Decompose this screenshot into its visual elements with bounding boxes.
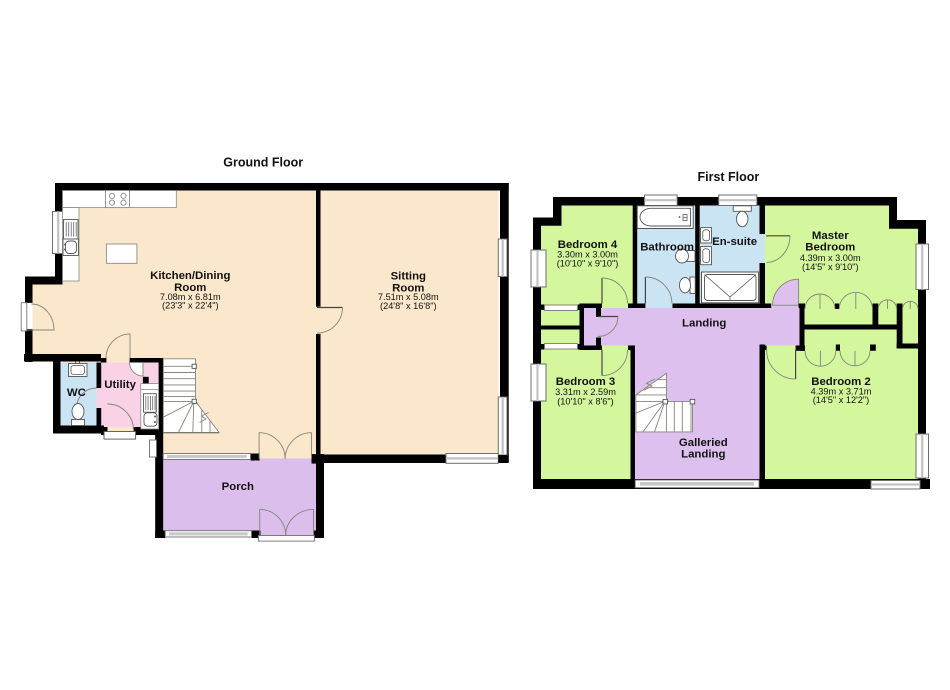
svg-text:(10'10" x 9'10"): (10'10" x 9'10"): [557, 258, 619, 268]
svg-text:Bathroom: Bathroom: [640, 242, 694, 254]
svg-text:First Floor: First Floor: [697, 170, 759, 184]
svg-text:Bedroom: Bedroom: [805, 241, 855, 253]
svg-text:Galleried: Galleried: [679, 437, 728, 449]
svg-text:Ground Floor: Ground Floor: [223, 155, 303, 169]
svg-text:(14'5" x 9'10"): (14'5" x 9'10"): [802, 262, 859, 272]
svg-text:Landing: Landing: [681, 449, 725, 461]
svg-text:(23'3" x 22'4"): (23'3" x 22'4"): [162, 301, 219, 311]
svg-text:Porch: Porch: [222, 481, 254, 493]
svg-text:(14'5" x 12'2"): (14'5" x 12'2"): [813, 395, 870, 405]
svg-text:(10'10" x 8'6"): (10'10" x 8'6"): [557, 396, 614, 406]
svg-text:Utility: Utility: [104, 379, 136, 391]
svg-text:(24'8" x 16'8"): (24'8" x 16'8"): [380, 301, 437, 311]
svg-text:En-suite: En-suite: [712, 236, 757, 248]
svg-text:WC: WC: [67, 387, 86, 399]
svg-text:Kitchen/Dining: Kitchen/Dining: [150, 270, 230, 282]
svg-text:Landing: Landing: [682, 318, 726, 330]
svg-text:Sitting: Sitting: [391, 271, 426, 283]
